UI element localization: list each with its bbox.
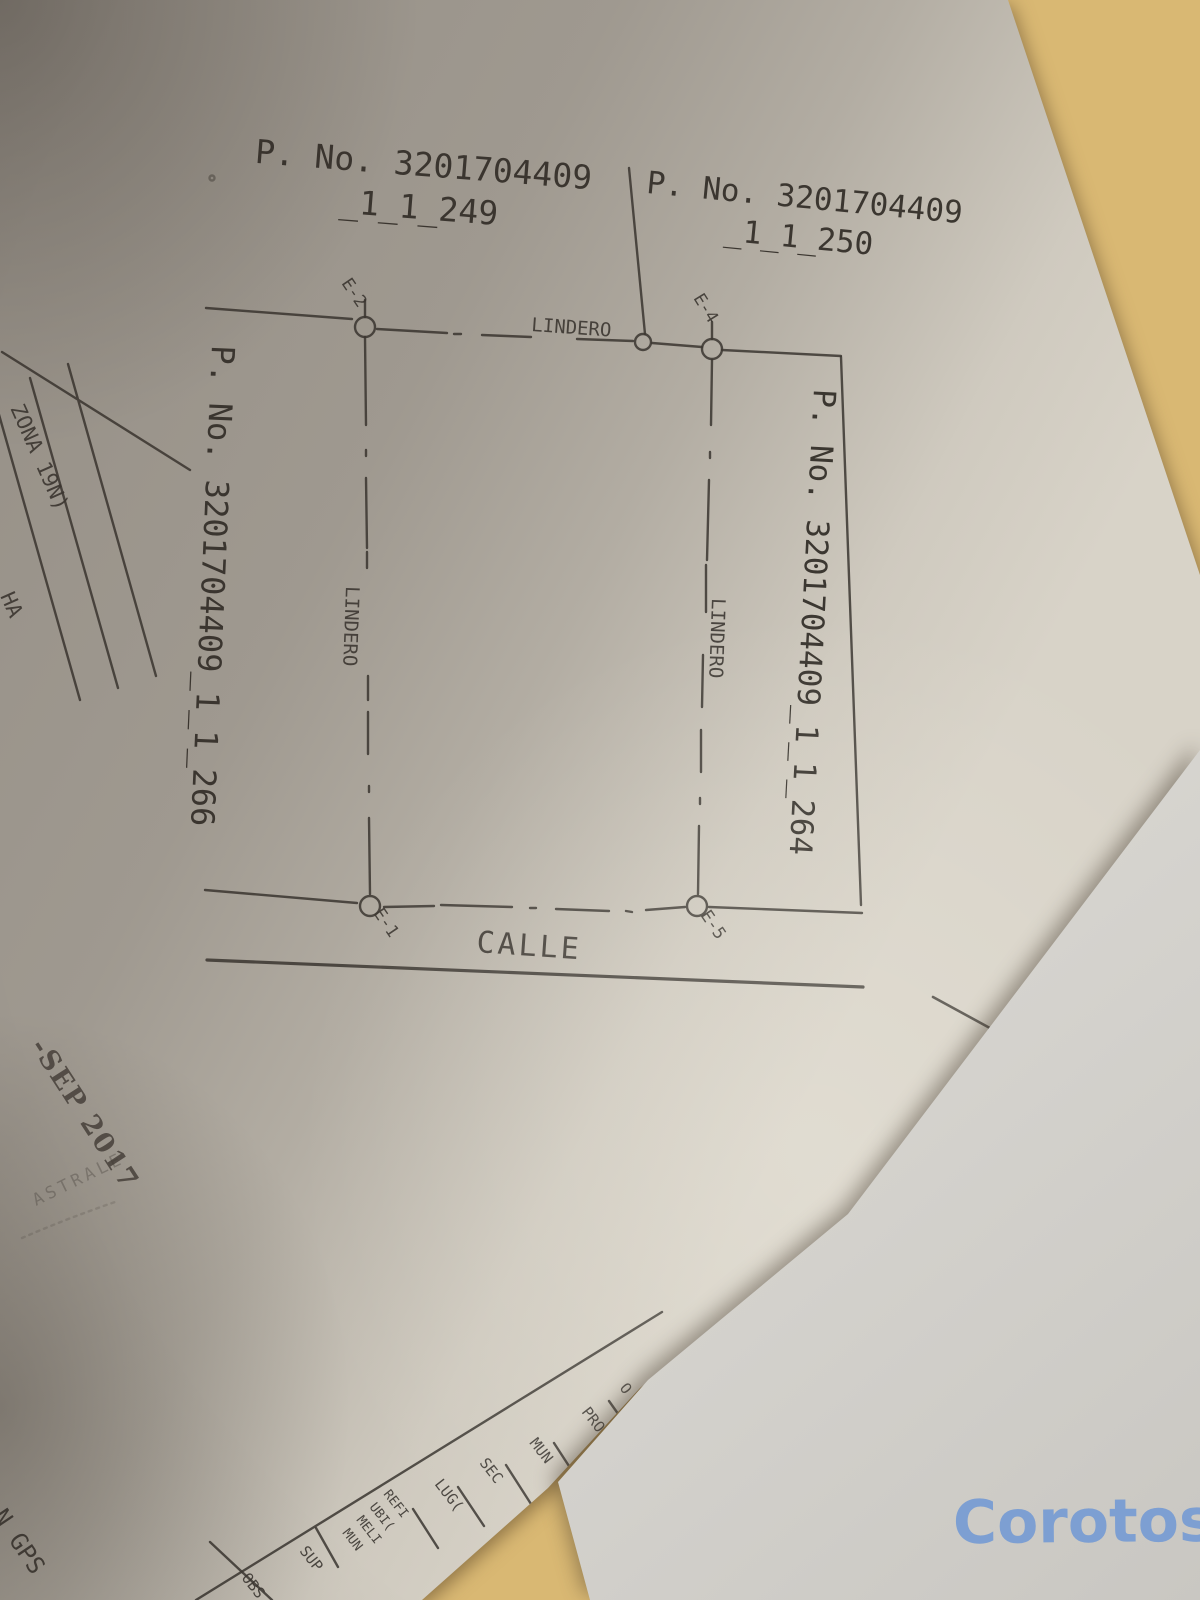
corotos-watermark: Corotos xyxy=(953,1486,1200,1558)
overlapping-sheet-wrap xyxy=(0,0,1200,1600)
overlapping-sheet xyxy=(0,0,1200,1600)
photo-of-survey-plan: P. No. 3201704409 _1_1_249 P. No. 320170… xyxy=(0,0,1200,1600)
